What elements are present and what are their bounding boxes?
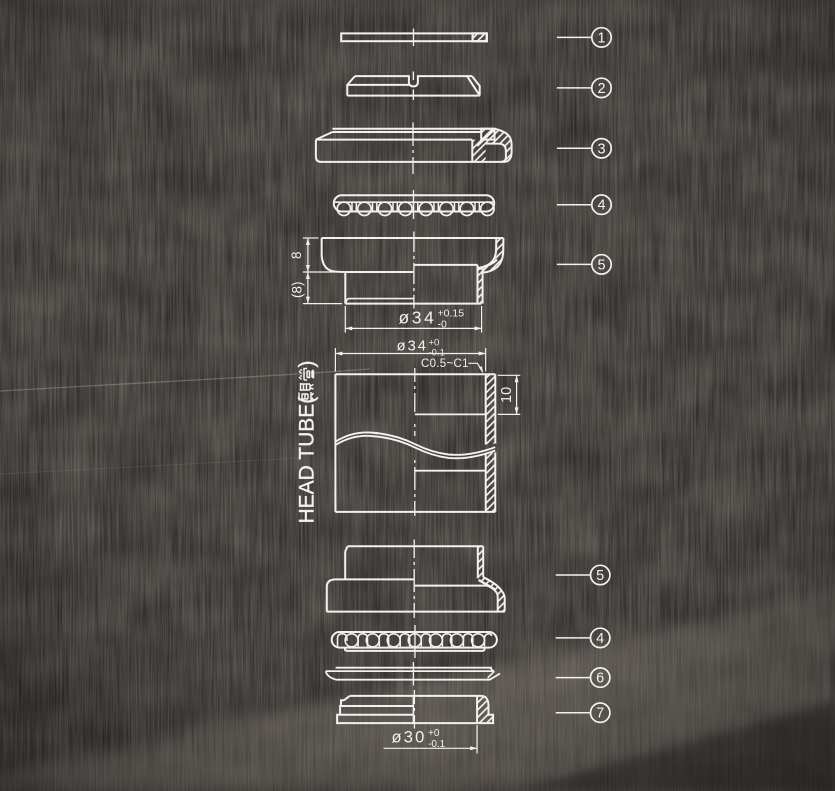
svg-text:3: 3	[597, 141, 605, 157]
svg-text:ø34: ø34	[397, 338, 428, 355]
svg-text:10: 10	[499, 387, 515, 403]
svg-text:5: 5	[596, 568, 604, 584]
svg-text:7: 7	[596, 706, 604, 722]
svg-text:2: 2	[597, 81, 605, 97]
svg-text:-0: -0	[438, 319, 447, 331]
svg-text:1: 1	[597, 30, 605, 46]
svg-text:): )	[296, 361, 319, 368]
svg-text:4: 4	[596, 631, 604, 647]
svg-text:+0: +0	[428, 728, 440, 739]
svg-text:6: 6	[596, 671, 604, 687]
svg-text:HEAD TUBE(: HEAD TUBE(	[296, 397, 319, 524]
svg-text:ø30: ø30	[392, 729, 427, 747]
svg-text:4: 4	[597, 198, 605, 214]
svg-text:ø34: ø34	[399, 308, 437, 328]
svg-text:C0.5~C1: C0.5~C1	[421, 358, 469, 370]
svg-text:5: 5	[597, 257, 605, 273]
svg-text:8: 8	[289, 251, 304, 259]
svg-text:-0.1: -0.1	[428, 739, 446, 750]
svg-text:(8): (8)	[290, 282, 305, 299]
